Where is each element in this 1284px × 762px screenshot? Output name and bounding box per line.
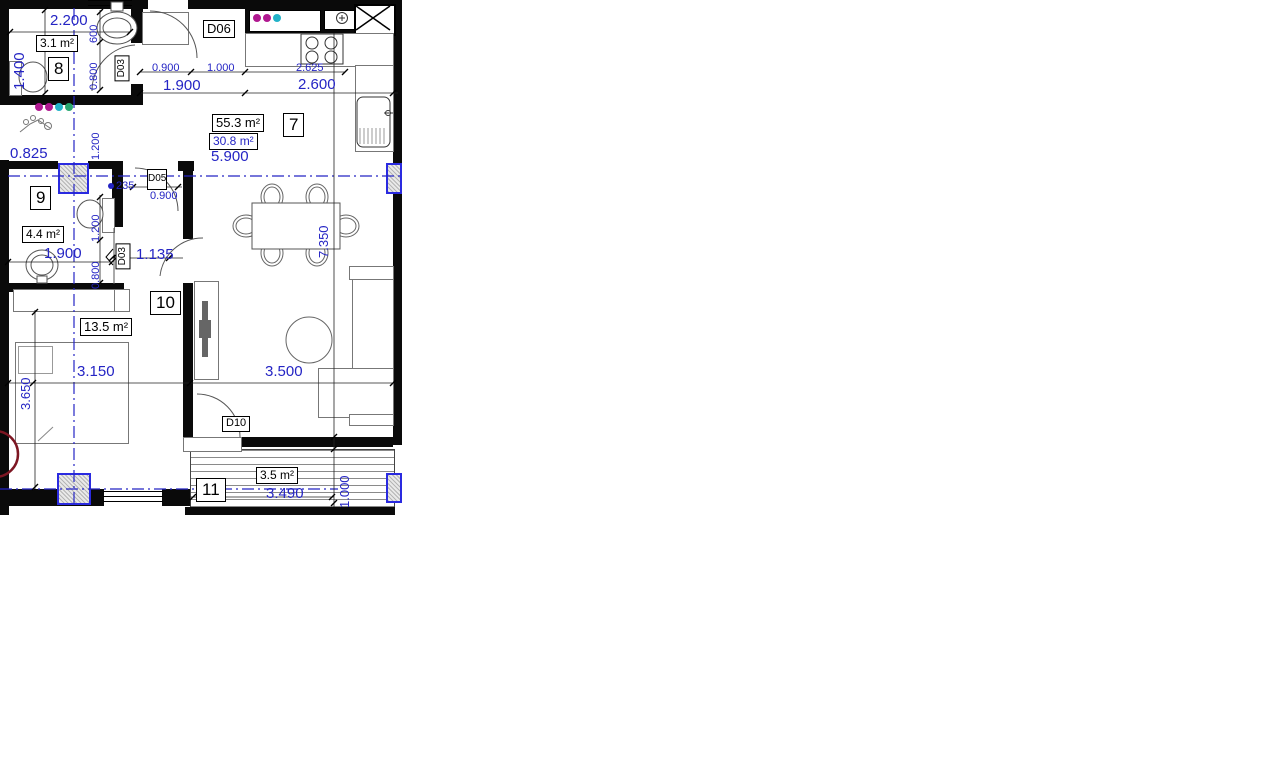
column-icon — [57, 473, 91, 505]
wall-right — [393, 0, 402, 445]
dim-1900-r9: 1.900 — [44, 246, 82, 263]
wall-room9-top-right — [88, 161, 112, 169]
marker-green-icon — [65, 103, 73, 111]
window-vent-box — [324, 10, 355, 30]
marker-magenta-icon — [263, 14, 271, 22]
dim-235: 235 — [116, 180, 134, 192]
dim-1000-top: 1.000 — [207, 62, 235, 74]
window-bedroom — [103, 491, 163, 504]
room7-number-label: 7 — [283, 113, 304, 137]
page-canvas: 2.200 1.400 3.1 m² 8 600 0.800 D03 D06 0… — [0, 0, 1284, 762]
shaft-box — [354, 4, 396, 36]
dim-7350: 7.350 — [317, 203, 331, 258]
dim-3500: 3.500 — [265, 364, 303, 381]
sofa-chaise — [318, 368, 394, 418]
room8-area-label: 3.1 m² — [36, 35, 78, 52]
window-kitchen — [249, 10, 321, 32]
room9-number-label: 9 — [30, 186, 51, 210]
door-label-d03-top: D03 — [115, 55, 130, 81]
door-label-d05: D05 — [147, 169, 167, 190]
dim-2200: 2.200 — [50, 13, 88, 30]
dim-2600: 2.600 — [298, 77, 336, 94]
dim-5900: 5.900 — [211, 149, 249, 166]
dim-0900-d05: 0.900 — [150, 190, 178, 202]
marker-cyan-icon — [55, 103, 63, 111]
room10-number-label: 10 — [150, 291, 181, 315]
door-label-d03-mid: D03 — [116, 243, 131, 269]
dim-0900-top: 0.900 — [152, 62, 180, 74]
dim-0800-top: 0.800 — [88, 44, 100, 90]
marker-blue-dot-icon — [108, 183, 114, 189]
wardrobe — [13, 289, 130, 312]
window-room8-top — [88, 0, 132, 10]
room10-area-label: 13.5 m² — [80, 318, 132, 336]
marker-cyan-icon — [273, 14, 281, 22]
tv-unit — [194, 281, 219, 380]
dim-1200-niche: 1.200 — [90, 112, 102, 160]
wall-bottom-left-b — [162, 489, 190, 506]
sofa-armrest — [349, 414, 394, 426]
dim-1400: 1.400 — [12, 28, 29, 90]
dim-3650: 3.650 — [19, 358, 33, 410]
column-icon — [386, 473, 402, 503]
room7-total-area-label: 55.3 m² — [212, 114, 264, 132]
marker-magenta-icon — [253, 14, 261, 22]
dim-2625: 2.625 — [296, 62, 324, 74]
dim-1135: 1.135 — [136, 247, 174, 264]
wall-living-south — [240, 437, 393, 447]
wall-balcony-south — [185, 507, 395, 515]
door-opening-d06 — [148, 0, 188, 9]
balcony-threshold — [183, 437, 242, 452]
sofa-armrest — [349, 266, 394, 280]
toilet-tank-icon — [102, 198, 115, 233]
dim-3150: 3.150 — [77, 364, 115, 381]
dim-0800-mid: 0.800 — [90, 243, 102, 289]
coat-hooks-icon — [20, 116, 52, 133]
marker-magenta-icon — [35, 103, 43, 111]
sofa-back — [352, 276, 394, 374]
room11-number-label: 11 — [196, 478, 226, 502]
entry-cabinet — [142, 12, 189, 45]
wall-left-upper — [0, 0, 9, 101]
kitchen-counter-right — [355, 65, 394, 152]
column-icon — [386, 163, 402, 194]
door-label-d06: D06 — [203, 20, 235, 38]
wall-left-main — [0, 160, 9, 515]
dim-3490: 3.490 — [266, 486, 304, 503]
wardrobe-end — [114, 289, 130, 312]
coffee-table-icon — [286, 317, 332, 363]
wall-corridor-jamb — [178, 161, 194, 171]
dining-chairs-icon — [233, 184, 359, 266]
door-label-d10: D10 — [222, 416, 250, 432]
room9-area-label: 4.4 m² — [22, 226, 64, 243]
room8-number-label: 8 — [48, 57, 69, 81]
dim-1200-wc: 1.200 — [90, 196, 102, 242]
dim-600: 600 — [88, 13, 100, 43]
dim-1000-balc: 1.000 — [338, 460, 352, 508]
room11-area-label: 3.5 m² — [256, 467, 298, 484]
column-icon — [58, 163, 89, 194]
marker-magenta-icon — [45, 103, 53, 111]
dim-0825: 0.825 — [10, 146, 48, 163]
dim-1900-top: 1.900 — [163, 78, 201, 95]
floor-plan: 2.200 1.400 3.1 m² 8 600 0.800 D03 D06 0… — [0, 0, 402, 515]
wall-living-west — [183, 283, 193, 437]
wall-corridor-right — [183, 171, 193, 239]
